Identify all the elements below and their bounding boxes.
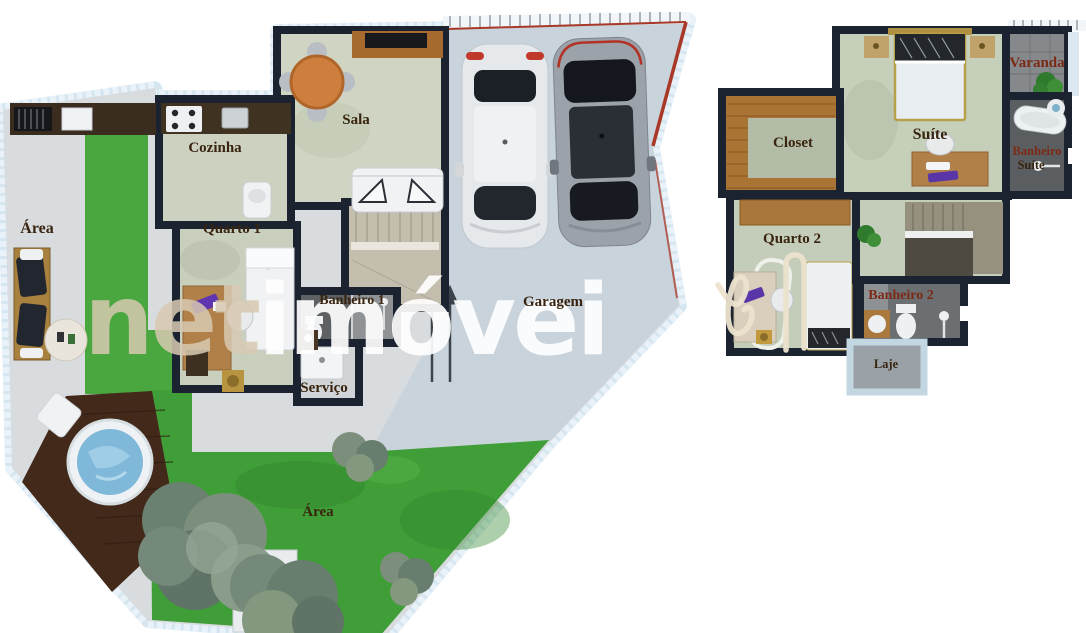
stair-shaft — [905, 238, 973, 276]
upper-floor — [718, 20, 1086, 392]
bed-quarto2 — [806, 262, 852, 350]
label-cozinha: Cozinha — [188, 140, 242, 156]
label-banheiro2: Banheiro 2 — [868, 288, 933, 303]
watermark-text: netimóvei — [84, 264, 607, 378]
dresser-quarto2 — [740, 200, 850, 225]
label-garagem: Garagem — [523, 294, 583, 310]
label-sala: Sala — [342, 112, 370, 128]
label-servico: Serviço — [300, 380, 347, 396]
grill-counter — [10, 103, 156, 135]
door-notch — [960, 306, 968, 321]
label-banheiro1: Banheiro 1 — [319, 293, 384, 308]
patio-table — [45, 319, 87, 361]
door-notch — [1068, 148, 1077, 164]
label-quarto2: Quarto 2 — [763, 231, 821, 247]
label-laje: Laje — [874, 357, 899, 371]
floor-plan-svg: netimóvei Área Cozinha Sala Quarto 1 Ban… — [0, 0, 1086, 633]
lawn-shade — [235, 461, 365, 509]
varanda-railing — [1068, 32, 1079, 96]
label-banheiro-suite-2: Suíte — [1017, 158, 1045, 172]
lawn-shade — [400, 490, 510, 550]
gray-car — [545, 36, 658, 248]
floor-shade — [290, 102, 370, 158]
label-varanda: Varanda — [1009, 55, 1065, 71]
white-car — [455, 44, 555, 248]
label-quarto1: Quarto 1 — [203, 221, 261, 237]
toilet — [896, 304, 916, 339]
floor-plan-canvas: netimóvei Área Cozinha Sala Quarto 1 Ban… — [0, 0, 1086, 633]
label-area-left: Área — [20, 218, 53, 237]
label-banheiro-suite-1: Banheiro — [1012, 144, 1061, 158]
vanity-sink — [864, 310, 890, 338]
floor-shade — [842, 80, 898, 160]
lounger — [14, 248, 50, 360]
label-suite: Suíte — [913, 126, 948, 143]
sink-round — [1047, 99, 1065, 117]
label-area-garden: Área — [302, 503, 334, 520]
sofa — [352, 168, 443, 212]
stair-railing-upper — [905, 231, 973, 238]
stair-railing — [351, 242, 439, 250]
jacuzzi — [68, 420, 152, 504]
tv-cabinet — [352, 31, 443, 58]
label-closet: Closet — [773, 135, 813, 151]
